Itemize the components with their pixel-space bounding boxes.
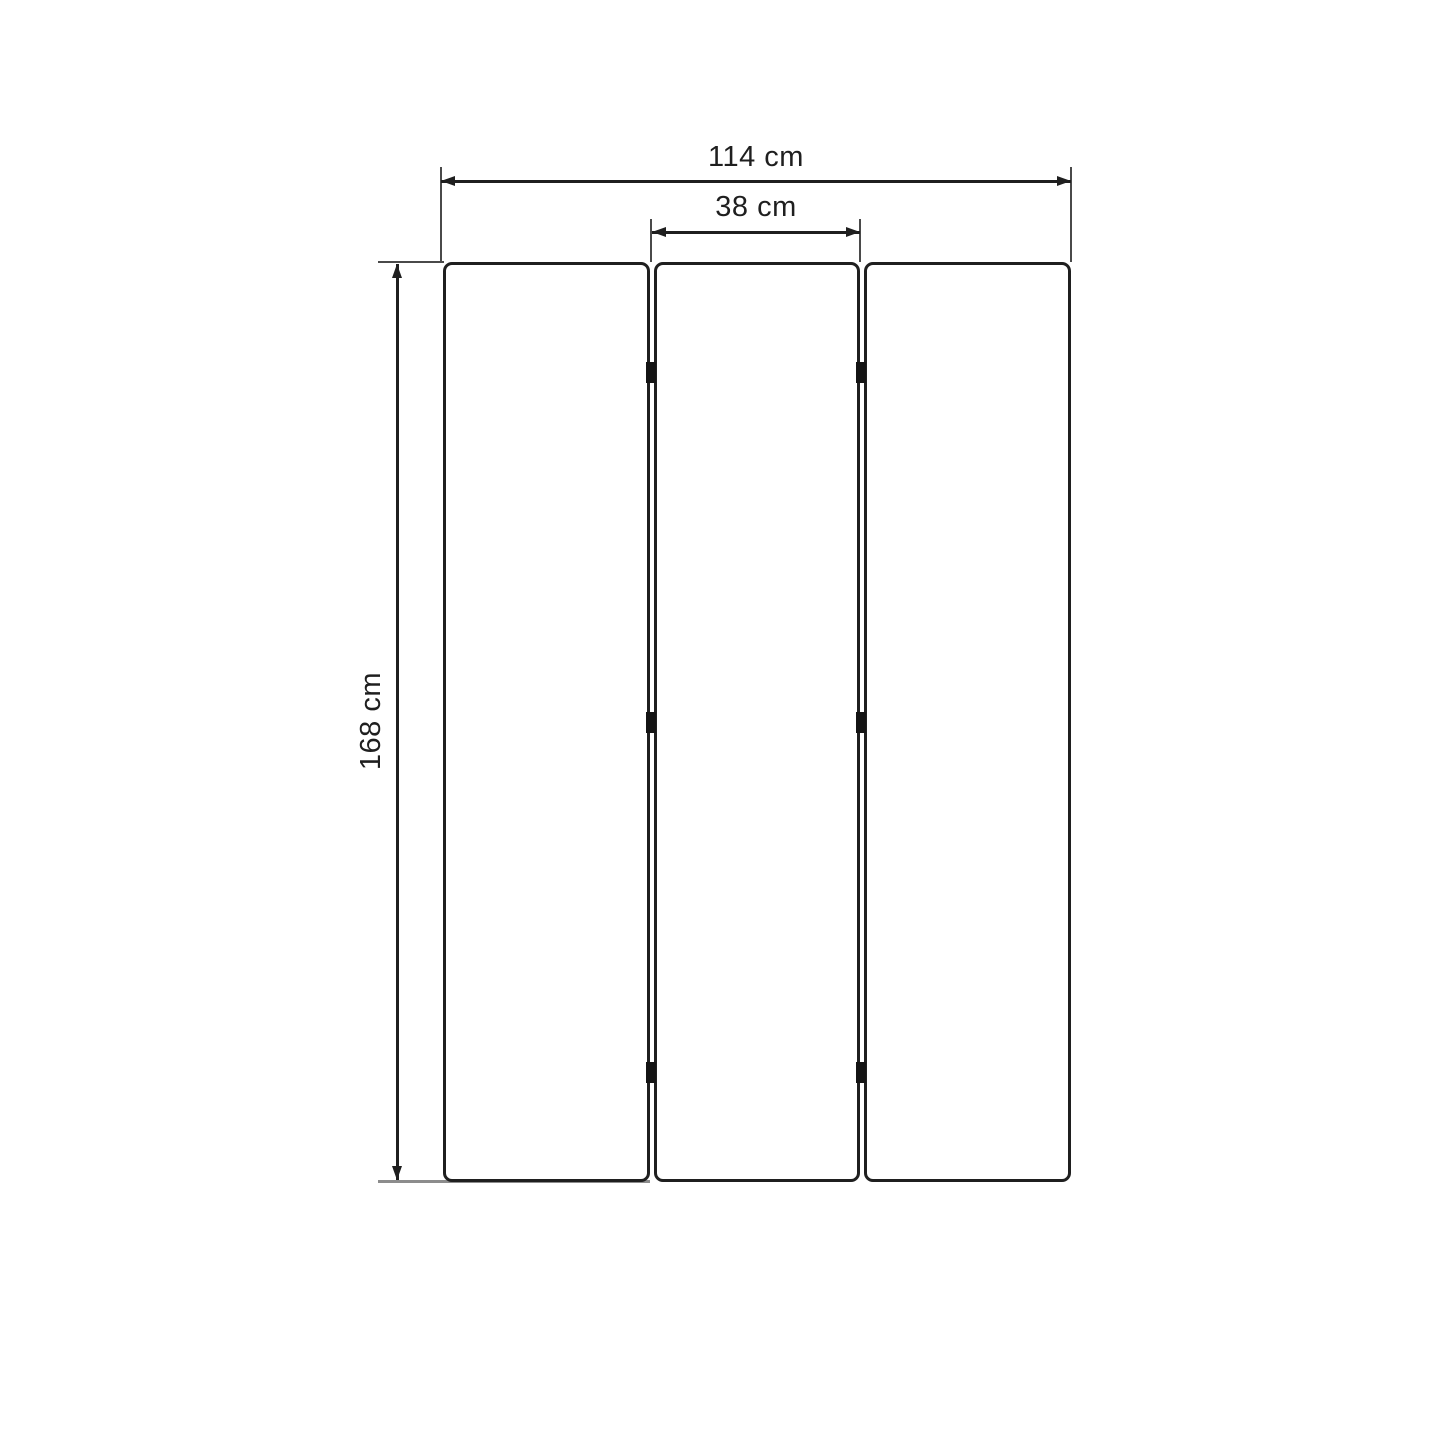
- hinge-right-bottom: [856, 1062, 866, 1083]
- overall-width-dimension-line: [441, 180, 1071, 183]
- height-dimension-line: [396, 264, 399, 1180]
- hinge-left-top: [646, 362, 656, 383]
- panel-width-dimension-label: 38 cm: [652, 191, 860, 224]
- hinge-left-bottom: [646, 1062, 656, 1083]
- screen-panel-left: [443, 262, 650, 1182]
- panel-width-extension-line-right: [859, 219, 861, 262]
- panel-width-extension-line-left: [650, 219, 652, 262]
- arrowhead-left-icon: [652, 227, 666, 237]
- hinge-left-middle: [646, 712, 656, 733]
- screen-panel-right: [864, 262, 1071, 1182]
- overall-width-dimension-label: 114 cm: [441, 141, 1071, 174]
- panel-width-dimension-line: [652, 231, 860, 234]
- arrowhead-right-icon: [846, 227, 860, 237]
- arrowhead-right-icon: [1057, 176, 1071, 186]
- dimension-diagram-canvas: 114 cm 38 cm 168 cm: [0, 0, 1445, 1445]
- hinge-right-top: [856, 362, 866, 383]
- arrowhead-left-icon: [441, 176, 455, 186]
- screen-panel-middle: [654, 262, 860, 1182]
- height-dimension-label: 168 cm: [346, 262, 396, 1180]
- height-dimension-label-text: 168 cm: [355, 672, 388, 770]
- hinge-right-middle: [856, 712, 866, 733]
